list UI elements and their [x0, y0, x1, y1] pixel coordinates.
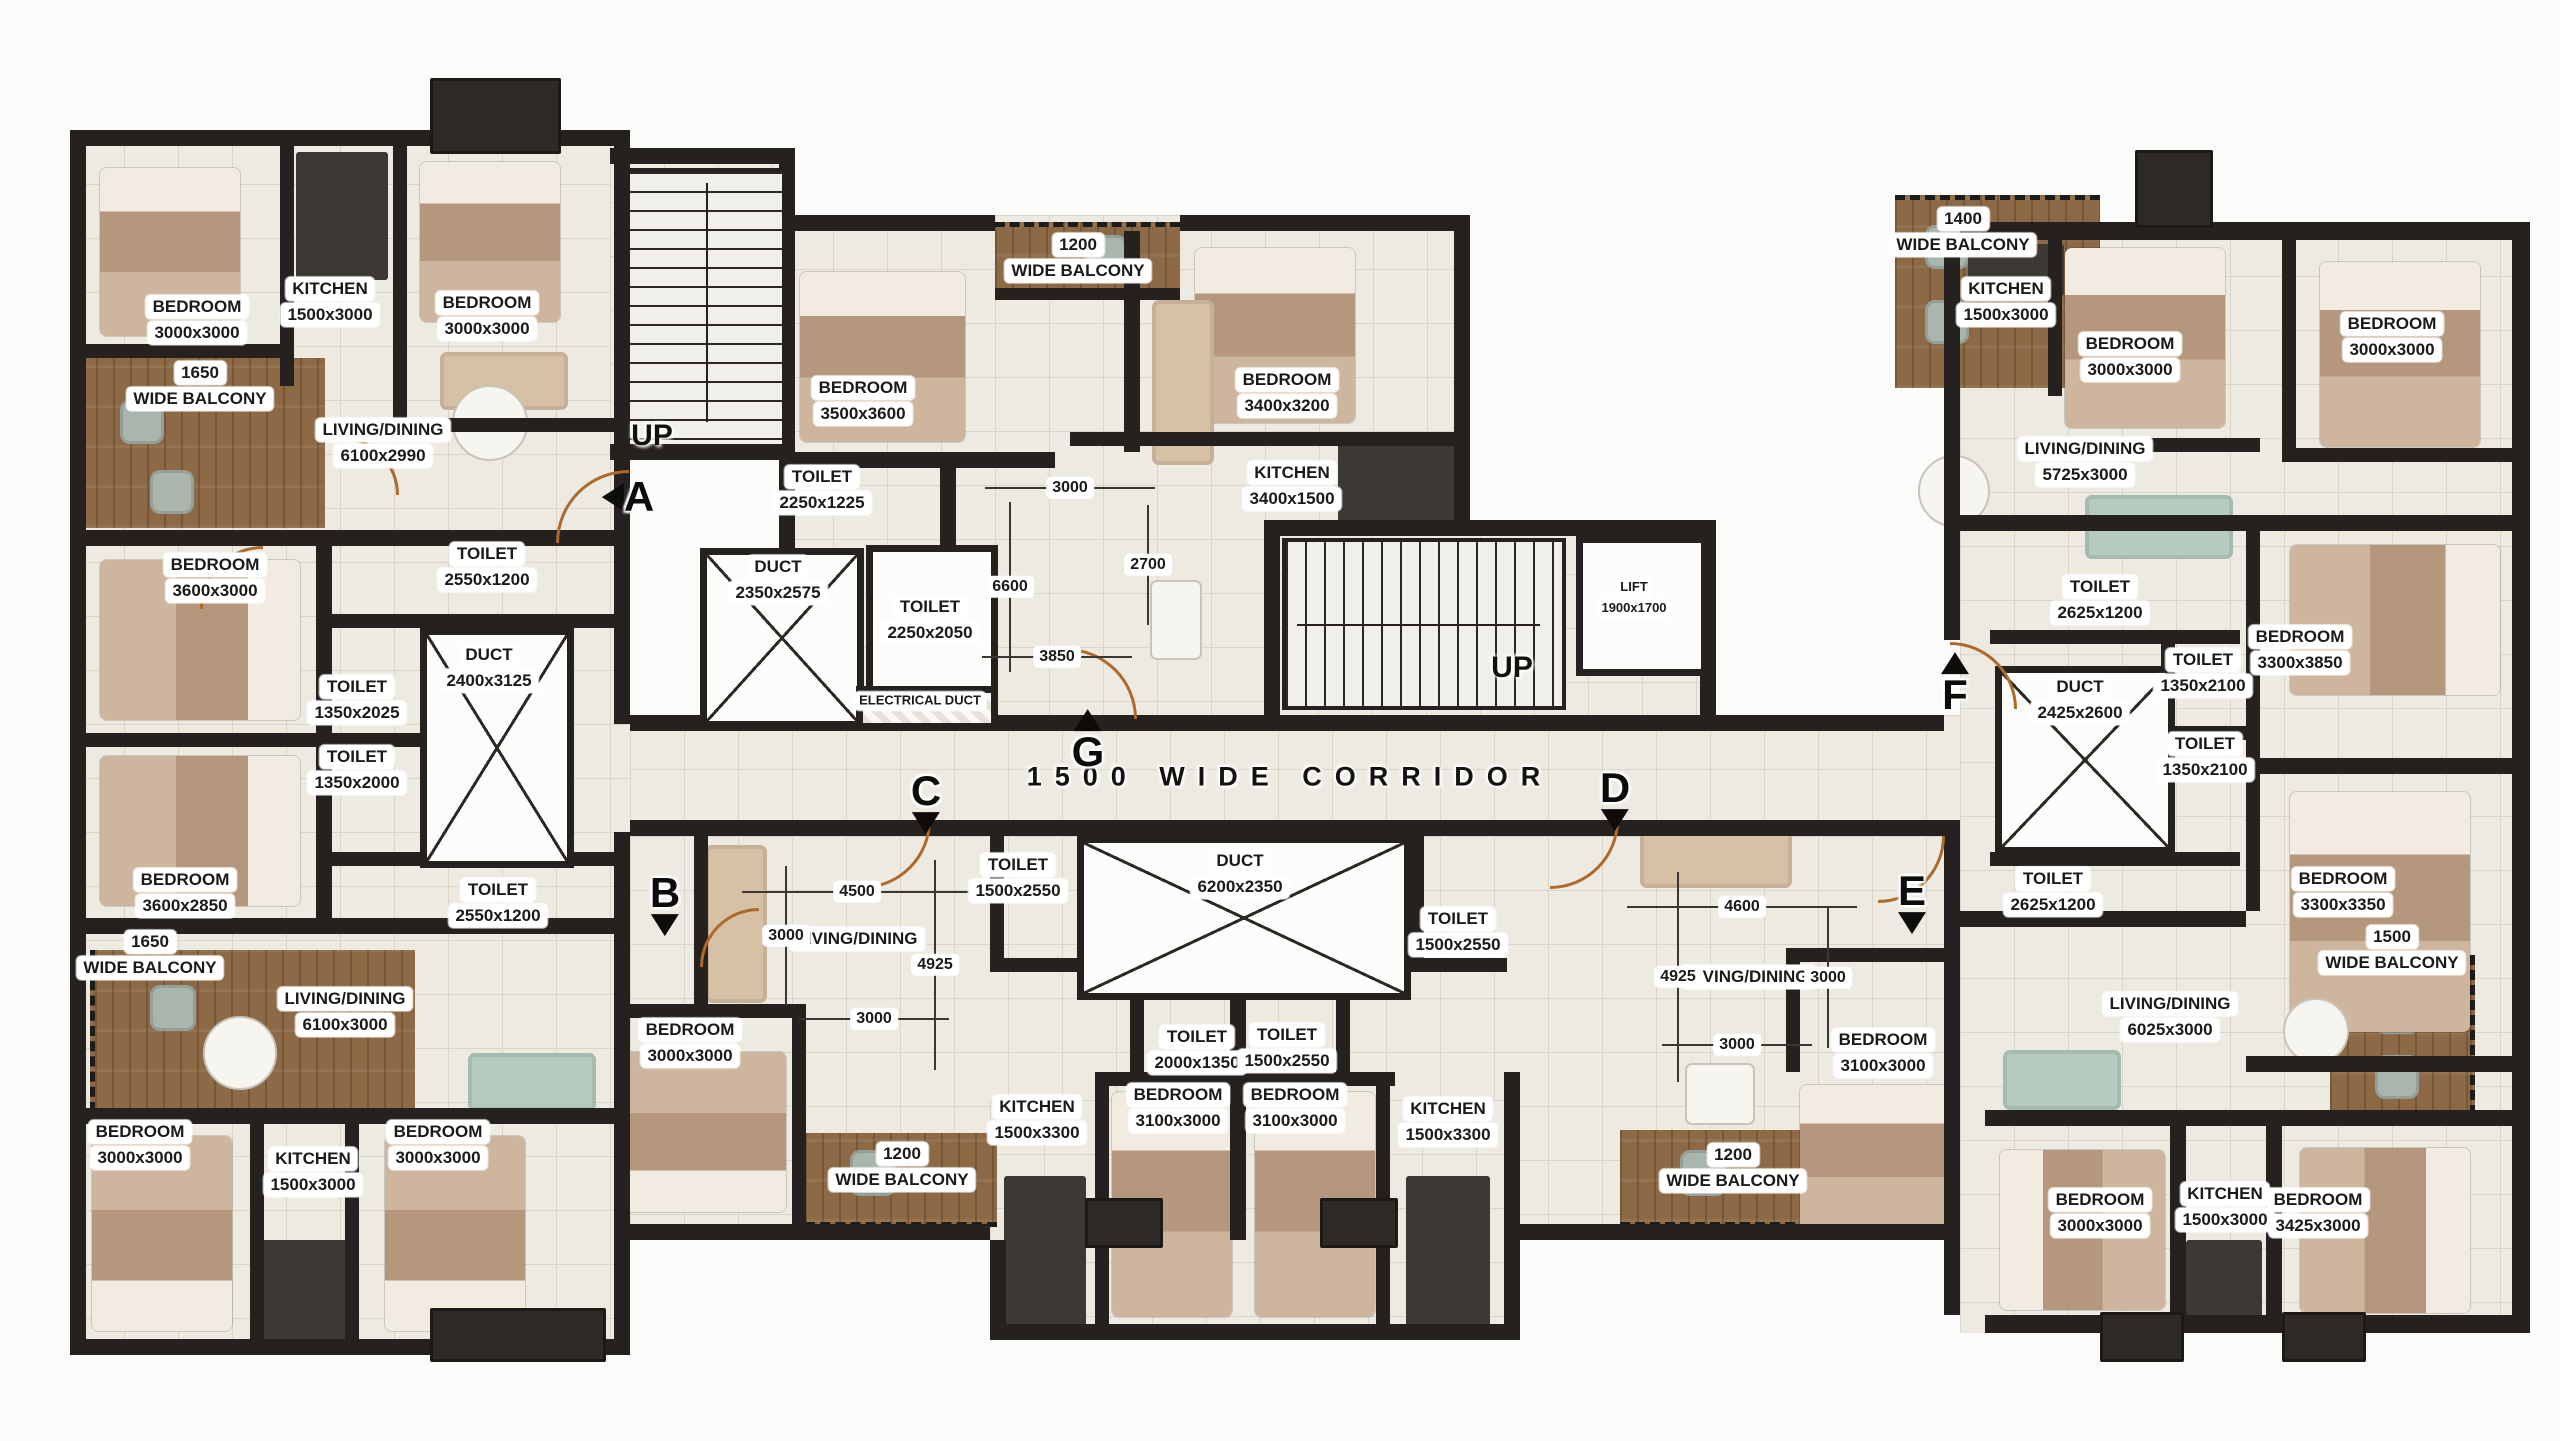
furniture-bed: [92, 1136, 232, 1331]
wall: [1410, 836, 1424, 972]
wall: [630, 1224, 990, 1240]
wall: [1336, 986, 1350, 1086]
wall: [940, 452, 956, 552]
appliance-niche: [430, 1308, 606, 1362]
wall: [610, 148, 795, 164]
dimension-label: 3000: [1046, 477, 1094, 499]
wall: [70, 918, 630, 934]
wall: [2048, 240, 2062, 396]
furniture-bed: [100, 560, 300, 720]
wall: [2512, 222, 2530, 1333]
furniture-bed: [100, 168, 240, 336]
wall: [2282, 448, 2512, 462]
furniture-bed: [2000, 1150, 2165, 1310]
wall: [1960, 515, 2530, 531]
dimension-label: 3000: [850, 1008, 898, 1030]
wall: [70, 530, 630, 546]
wall: [1180, 215, 1470, 231]
furniture-bed: [2290, 545, 2500, 695]
dimension-label: 4925: [911, 954, 959, 976]
wall: [1504, 1072, 1520, 1240]
duct-shaft: [700, 548, 864, 728]
wall: [1130, 986, 1144, 1086]
wall: [630, 820, 1960, 836]
furniture-bed: [1800, 1085, 1950, 1233]
appliance-niche: [430, 78, 561, 154]
wall: [1990, 852, 2240, 866]
marker-arrow-icon: [912, 812, 940, 834]
furniture-bed: [800, 272, 965, 442]
wall: [316, 546, 332, 918]
wall: [990, 1324, 1520, 1340]
wall: [250, 1124, 264, 1355]
wall: [2246, 531, 2260, 911]
wall: [1264, 520, 1716, 536]
wall: [614, 1004, 806, 1018]
wall: [1095, 1072, 1395, 1086]
section-marker-c: C: [911, 772, 941, 834]
wall: [1230, 986, 1246, 1240]
wall: [1944, 240, 1960, 540]
wall: [995, 288, 1180, 300]
furniture-bed: [100, 756, 300, 906]
marker-letter: D: [1600, 769, 1630, 807]
wall: [694, 836, 708, 1016]
wall: [795, 452, 1055, 468]
wall: [1264, 520, 1280, 715]
dimension-label: 2700: [1124, 554, 1172, 576]
lift-shaft: [866, 545, 998, 697]
floor-plan: BEDROOM3000x3000KITCHEN1500x3000BEDROOM3…: [0, 0, 2560, 1441]
furniture-table: [1150, 580, 1202, 660]
furniture-chair: [120, 400, 164, 444]
stair-up-label: UP: [631, 419, 673, 453]
furniture-chair: [150, 985, 196, 1031]
balcony-deck: [805, 1133, 997, 1227]
wall: [2282, 240, 2296, 448]
wall: [393, 146, 407, 432]
furniture-table: [2283, 998, 2349, 1064]
kitchen-counter: [1406, 1176, 1490, 1326]
kitchen-counter: [1004, 1176, 1086, 1326]
kitchen-counter: [1338, 438, 1460, 526]
furniture-bed: [420, 162, 560, 322]
wall: [1960, 222, 2530, 240]
wall: [407, 418, 630, 432]
wall: [2161, 726, 2260, 740]
furniture-chair: [150, 470, 194, 514]
section-marker-a: A: [602, 478, 654, 516]
marker-arrow-icon: [602, 483, 624, 511]
wall: [345, 1124, 359, 1355]
wall: [70, 1108, 630, 1124]
wall: [1070, 432, 1460, 446]
appliance-niche: [1085, 1198, 1163, 1248]
wall: [1944, 540, 1960, 640]
wall: [1397, 958, 1507, 972]
stair-up-label: UP: [1491, 651, 1533, 685]
wall: [1944, 925, 1960, 1315]
duct-shaft: [1995, 666, 2175, 854]
kitchen-counter: [262, 1240, 348, 1344]
wall: [1786, 948, 1960, 962]
electrical-duct-shaft: [856, 686, 998, 730]
marker-arrow-icon: [651, 914, 679, 936]
wall: [2060, 438, 2260, 452]
dimension-label: 3850: [1033, 646, 1081, 668]
marker-letter: E: [1898, 872, 1926, 910]
wall: [2246, 758, 2530, 774]
marker-letter: C: [911, 772, 941, 810]
marker-letter: G: [1072, 733, 1105, 771]
furniture-sofa: [2003, 1050, 2121, 1110]
furniture-bed: [2065, 248, 2225, 428]
wall: [1960, 911, 2246, 927]
furniture-chair: [850, 1150, 896, 1196]
marker-letter: F: [1942, 676, 1968, 714]
dimension-label: 6600: [986, 576, 1034, 598]
section-marker-g: G: [1072, 709, 1105, 771]
section-marker-f: F: [1941, 652, 1969, 714]
wall: [2266, 1126, 2282, 1316]
corridor-label: 1500 WIDE CORRIDOR: [1027, 762, 1554, 793]
wall: [795, 215, 995, 231]
appliance-niche: [2135, 150, 2213, 228]
marker-arrow-icon: [1898, 912, 1926, 934]
wall: [1985, 1110, 2530, 1126]
wall: [990, 958, 1090, 972]
wall: [792, 1004, 806, 1224]
furniture-bed: [2290, 792, 2470, 1032]
wall: [1504, 1240, 1520, 1340]
appliance-niche: [2282, 1312, 2366, 1362]
wall: [70, 344, 294, 358]
section-marker-e: E: [1898, 872, 1926, 934]
wall: [1124, 231, 1140, 452]
section-marker-d: D: [1600, 769, 1630, 831]
dimension-label: 3000: [1713, 1034, 1761, 1056]
furniture-sofa: [1640, 828, 1792, 888]
staircase: [626, 168, 786, 448]
furniture-bed: [622, 1052, 786, 1212]
furniture-bed: [2320, 262, 2480, 447]
furniture-table: [1685, 1063, 1755, 1125]
wall: [990, 836, 1004, 972]
furniture-bed: [385, 1136, 525, 1331]
wall: [1520, 1224, 1960, 1240]
kitchen-counter: [296, 152, 388, 280]
appliance-niche: [1320, 1198, 1398, 1248]
furniture-bed: [1195, 248, 1355, 423]
lift-shaft: [1576, 536, 1708, 676]
duct-shaft: [1077, 836, 1411, 1000]
wall: [2246, 1056, 2530, 1072]
dimension-label: 4500: [833, 881, 881, 903]
marker-letter: A: [624, 478, 654, 516]
dimension-label: 4925: [1654, 966, 1702, 988]
section-marker-b: B: [650, 874, 680, 936]
dimension-label: 3000: [762, 925, 810, 947]
wall: [1786, 948, 1800, 1072]
duct-shaft: [420, 628, 574, 868]
furniture-chair: [1680, 1150, 1726, 1196]
wall: [1990, 630, 2240, 644]
wall: [1985, 1315, 2530, 1333]
dimension-label: 3000: [1804, 967, 1852, 989]
furniture-table: [203, 1016, 277, 1090]
wall: [614, 832, 630, 1355]
wall: [70, 733, 316, 747]
furniture-bed: [2300, 1148, 2470, 1313]
marker-arrow-icon: [1601, 809, 1629, 831]
furniture-chair: [1085, 235, 1127, 277]
dimension-label: 4600: [1718, 896, 1766, 918]
marker-letter: B: [650, 874, 680, 912]
wall: [2170, 1126, 2186, 1316]
appliance-niche: [2100, 1312, 2184, 1362]
wall: [1454, 231, 1470, 532]
furniture-sofa: [468, 1053, 596, 1111]
wall: [332, 614, 614, 628]
